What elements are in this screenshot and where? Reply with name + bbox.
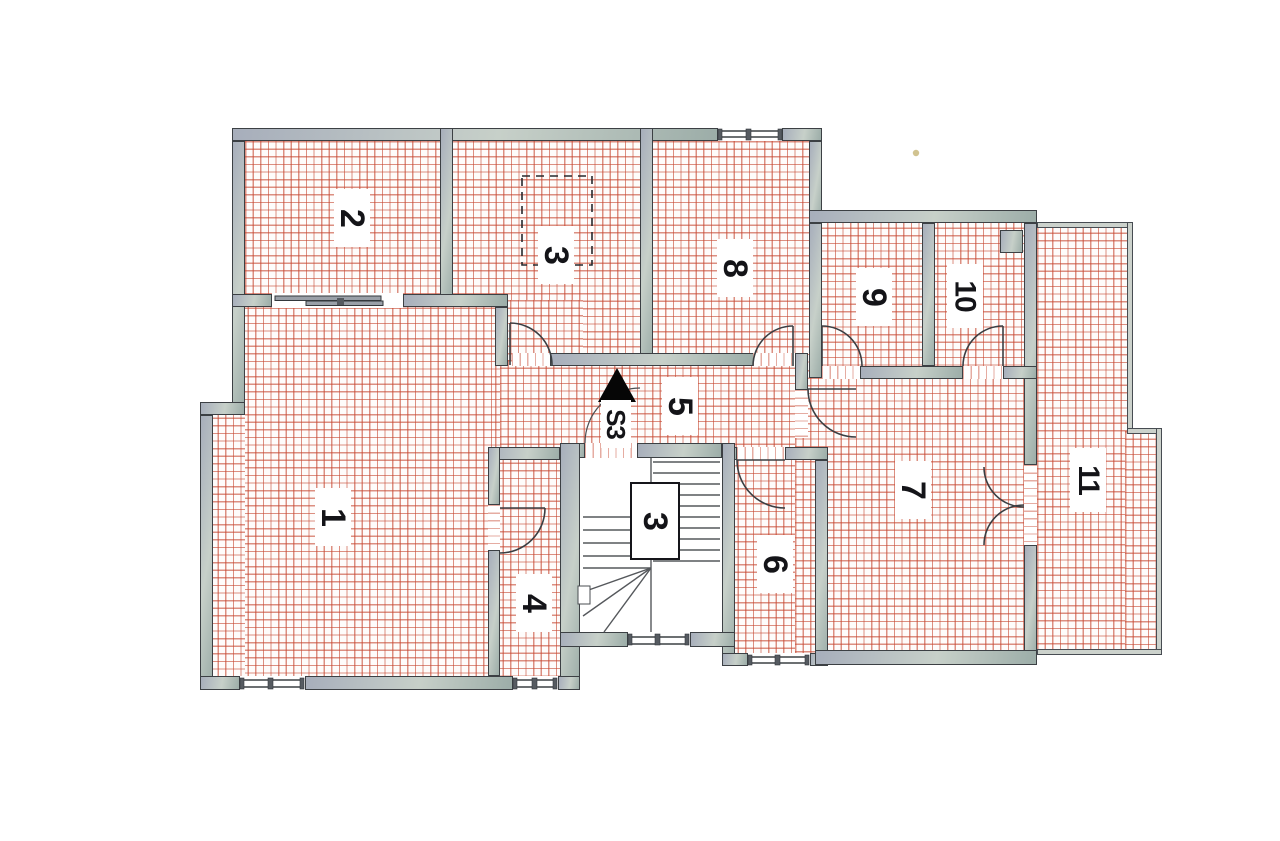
wall xyxy=(440,128,453,307)
wall xyxy=(637,443,722,458)
wall xyxy=(1003,366,1037,379)
room-label-10: 10 xyxy=(947,264,983,328)
window xyxy=(718,128,782,141)
door-opening xyxy=(822,366,860,379)
door-opening xyxy=(963,366,1003,379)
room-floor-4 xyxy=(495,455,565,680)
wall xyxy=(1024,223,1037,465)
wall xyxy=(403,294,508,307)
staircase-code-label: S3 xyxy=(601,400,631,448)
wall xyxy=(785,447,828,460)
wall xyxy=(200,676,240,690)
wall xyxy=(640,128,653,366)
room-label-5: 5 xyxy=(662,377,698,435)
terrace-wall xyxy=(1127,222,1133,434)
wall xyxy=(558,676,580,690)
room-label-9: 9 xyxy=(856,268,892,326)
room-label-11: 11 xyxy=(1070,448,1106,512)
sliding-door-opening xyxy=(272,293,403,308)
room-label-8: 8 xyxy=(717,239,753,297)
room-label-1: 1 xyxy=(315,488,351,546)
wall xyxy=(200,415,213,690)
wall xyxy=(722,653,748,666)
room-floor-1 xyxy=(240,300,495,683)
wall xyxy=(200,402,245,415)
room-floor-1 xyxy=(210,410,245,683)
room-label-7: 7 xyxy=(895,461,931,519)
wall xyxy=(815,650,1037,665)
room-label-4: 4 xyxy=(516,574,552,632)
wall xyxy=(488,447,500,505)
room-label-3: 3 xyxy=(538,226,574,284)
wall xyxy=(305,676,513,690)
wall xyxy=(1024,545,1037,660)
duct-shaft xyxy=(1000,230,1023,253)
room-floor-11 xyxy=(1037,225,1130,652)
door-opening xyxy=(488,505,500,550)
room-label-6: 6 xyxy=(757,535,793,593)
wall xyxy=(560,632,628,647)
wall xyxy=(690,632,735,647)
door-opening xyxy=(753,353,795,366)
door-opening xyxy=(795,390,808,438)
wall xyxy=(860,366,963,379)
door-opening xyxy=(737,447,785,460)
wall xyxy=(922,223,935,366)
wall xyxy=(815,460,828,666)
scan-artifact xyxy=(913,150,919,156)
wall xyxy=(550,353,755,366)
wall xyxy=(495,307,508,366)
wall xyxy=(782,128,822,141)
wall xyxy=(560,443,580,690)
stairwell-label: 3 xyxy=(630,482,680,560)
wall xyxy=(488,550,500,676)
wall xyxy=(809,223,822,378)
floor-plan-canvas: 1 2 3 4 5 6 7 8 9 10 11 3 S3 xyxy=(0,0,1280,841)
door-opening xyxy=(512,353,550,366)
window xyxy=(628,632,690,647)
terrace-wall xyxy=(1037,222,1133,228)
wall xyxy=(232,294,272,307)
double-door-opening xyxy=(1024,465,1037,545)
wall xyxy=(232,141,245,415)
room-label-2: 2 xyxy=(334,189,370,247)
room-floor-11 xyxy=(1125,431,1159,652)
terrace-wall xyxy=(1156,428,1162,655)
terrace-wall xyxy=(1037,649,1162,655)
wall xyxy=(795,353,808,390)
wall xyxy=(809,210,1037,223)
